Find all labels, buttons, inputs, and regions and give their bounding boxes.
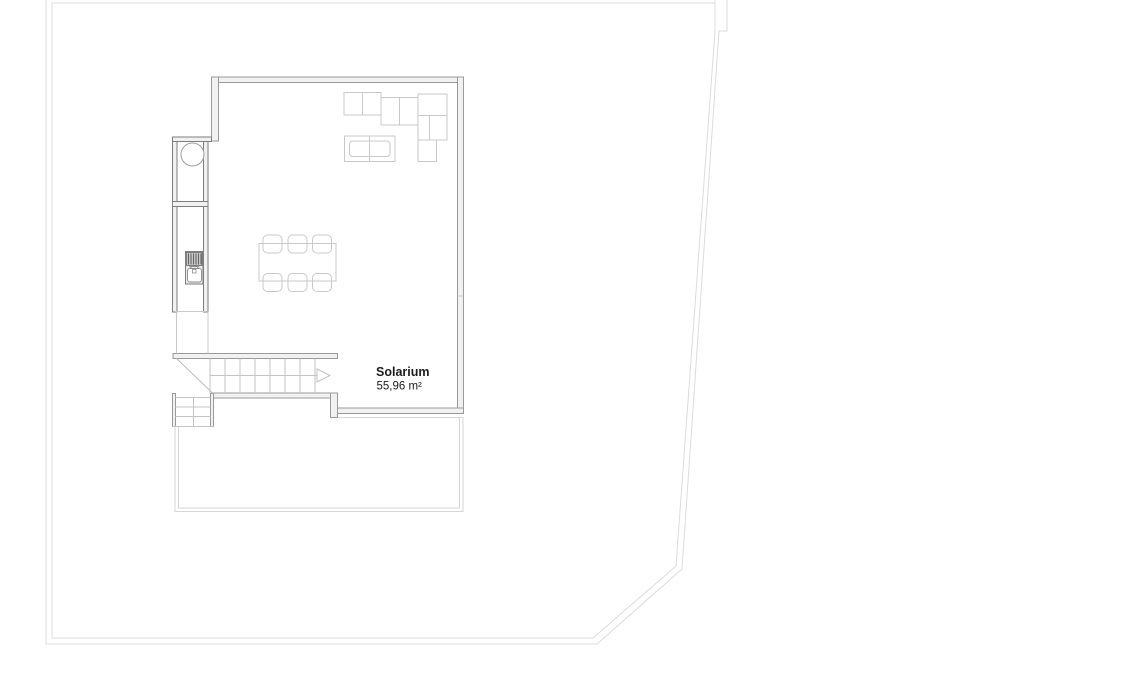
kitchen-wall-right	[204, 137, 209, 312]
wall-steps-left	[173, 394, 176, 427]
terrace-outline-inner	[179, 418, 460, 509]
kitchen-wall-left	[173, 137, 178, 312]
sink-basin	[188, 269, 202, 283]
dining-set	[259, 235, 336, 292]
property-boundary	[46, 0, 727, 644]
dining-chair	[288, 274, 307, 292]
stair-direction-arrow-icon	[317, 369, 330, 382]
wall-jog-vertical	[331, 393, 338, 418]
dining-table	[259, 244, 336, 282]
room-area-label: 55,96 m²	[377, 381, 423, 393]
room-label: Solarium 55,96 m²	[376, 365, 430, 393]
room-name-label: Solarium	[376, 365, 430, 379]
kitchen-wall-top	[173, 137, 212, 142]
floor-plan-canvas: Solarium 55,96 m²	[0, 0, 1125, 678]
wall-stair-top	[173, 354, 338, 359]
sofa-module-corner	[418, 94, 447, 140]
wall-right	[458, 77, 464, 414]
terrace-outline-outer	[175, 418, 463, 512]
sofa-module-chaise	[418, 140, 437, 162]
wall-bottom-right	[338, 408, 464, 414]
dining-chair	[263, 274, 282, 292]
wall-stair-bottom	[212, 393, 338, 398]
stair-break-line	[177, 359, 214, 394]
kitchen-wall-divider	[173, 202, 209, 207]
coffee-table	[345, 136, 396, 162]
wall-top	[212, 77, 464, 83]
furniture	[259, 93, 447, 292]
lower-steps	[173, 398, 214, 427]
sink-fixture	[186, 252, 204, 285]
roof-terrace	[175, 418, 463, 512]
property-boundary-inner	[52, 0, 715, 638]
washbasin-circle	[181, 143, 204, 166]
wall-steps-right	[211, 394, 214, 427]
wall-left-upper	[212, 77, 219, 141]
property-boundary-outer	[46, 0, 727, 644]
kitchen-unit	[173, 137, 212, 354]
floor-plan-drawing: Solarium 55,96 m²	[0, 0, 1125, 678]
dining-chair	[313, 274, 332, 292]
